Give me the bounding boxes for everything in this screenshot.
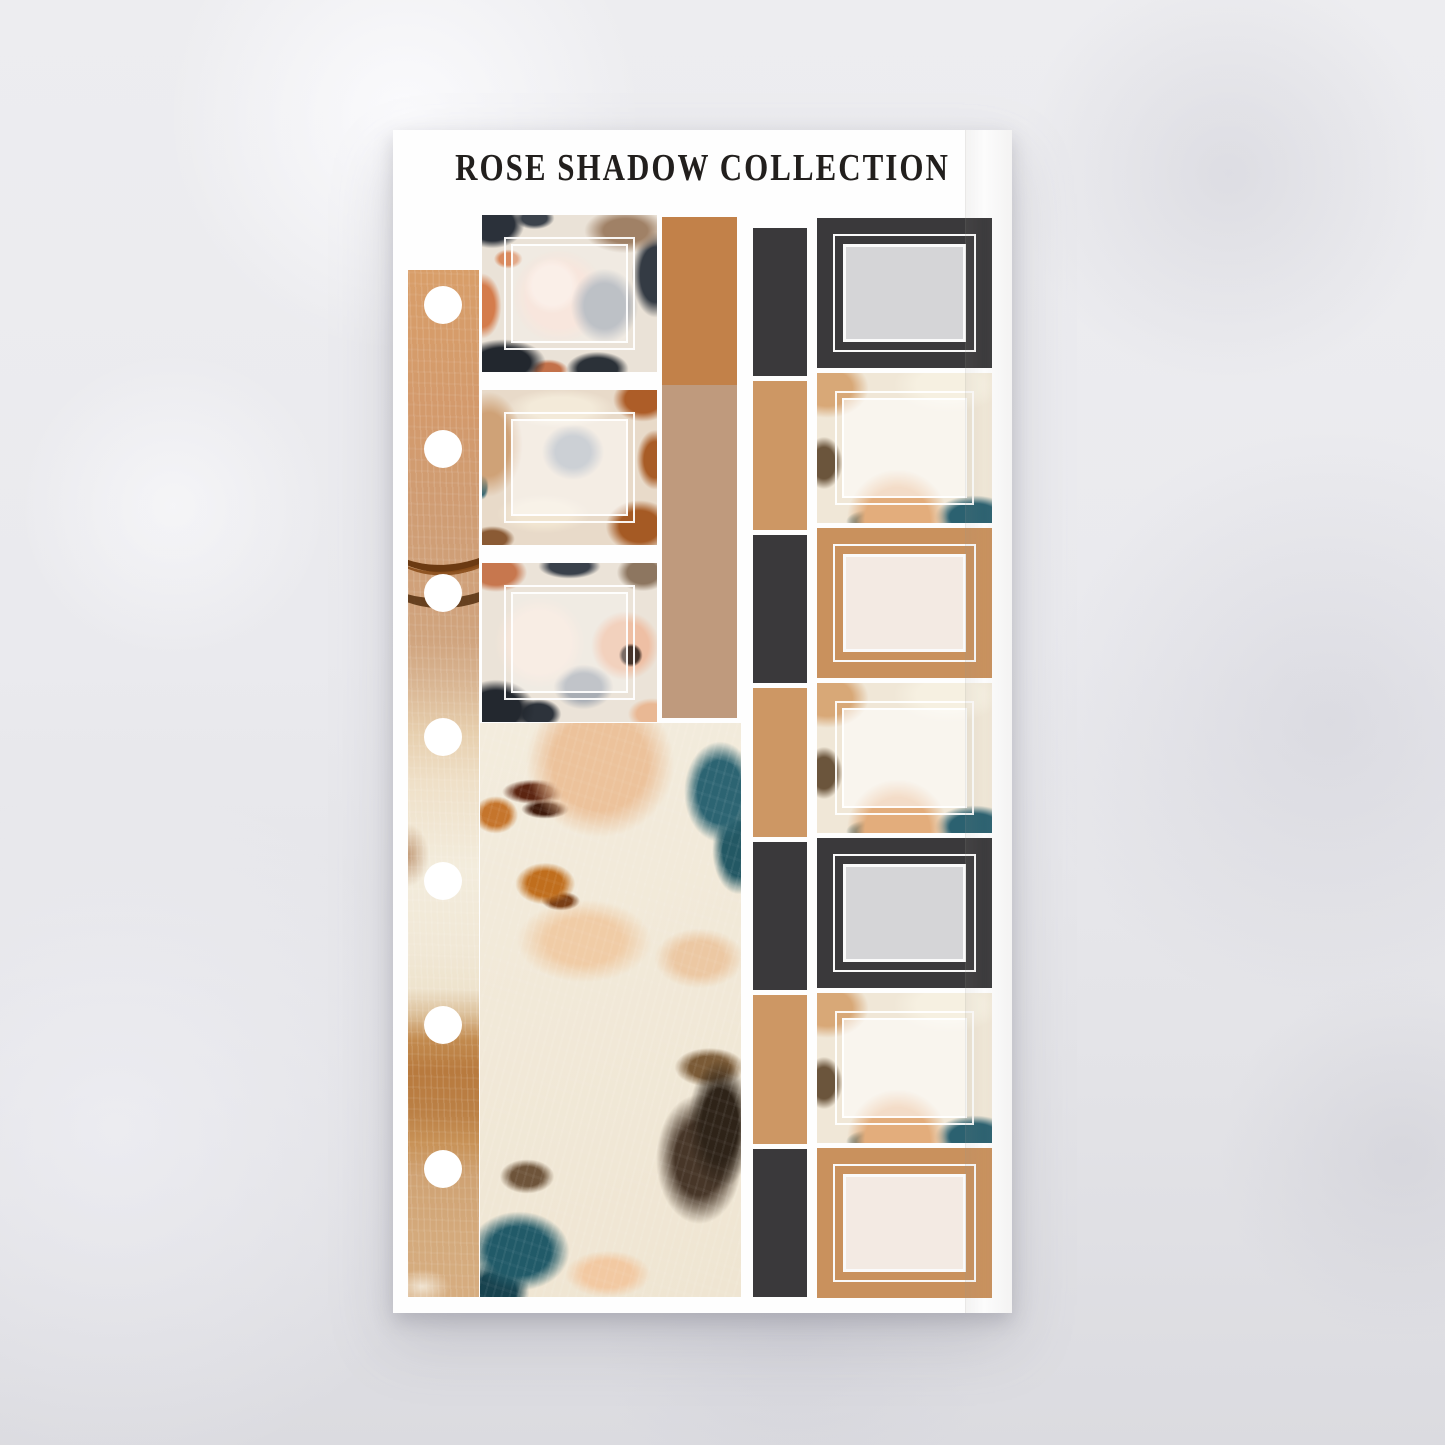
center-swatch: [843, 864, 966, 962]
charcoal-strip-sticker: [753, 842, 807, 990]
white-frame-inner: [842, 398, 967, 498]
charcoal-strip-sticker: [753, 535, 807, 683]
white-frame-inner: [511, 592, 628, 693]
white-frame-outer: [504, 412, 635, 523]
brush-texture: [408, 270, 479, 1297]
white-frame-outer: [504, 237, 635, 350]
brushstroke-box-sticker: [482, 390, 657, 545]
punch-hole: [424, 1150, 462, 1188]
abstract-paint-block-sticker: [480, 723, 741, 1297]
tan-strip-sticker: [753, 995, 807, 1143]
white-frame-outer: [504, 585, 635, 700]
floral-box-sticker: [482, 215, 657, 372]
tan-frame-sticker: [817, 528, 992, 678]
sticker-sheet: ROSE SHADOW COLLECTION: [393, 130, 1012, 1313]
punch-hole: [424, 718, 462, 756]
punch-hole: [424, 574, 462, 612]
charcoal-strip-sticker: [753, 228, 807, 376]
tan-strip-sticker: [753, 381, 807, 529]
white-frame-outer: [835, 391, 974, 505]
right-column: [817, 218, 992, 1298]
frosted-floral-box-sticker: [817, 683, 992, 833]
center-swatch: [843, 554, 966, 652]
white-frame-inner: [511, 244, 628, 343]
white-frame-outer: [835, 1011, 974, 1125]
tan-frame-sticker: [817, 1148, 992, 1298]
frosted-floral-box-sticker: [817, 993, 992, 1143]
charcoal-frame-sticker: [817, 218, 992, 368]
punch-hole: [424, 286, 462, 324]
spacer-column: [753, 228, 807, 1297]
punch-hole: [424, 430, 462, 468]
center-swatch: [843, 1174, 966, 1272]
marble-background: ROSE SHADOW COLLECTION: [0, 0, 1445, 1445]
punch-hole: [424, 862, 462, 900]
floral-box-sticker: [482, 563, 657, 722]
white-frame-inner: [511, 419, 628, 516]
punch-hole: [424, 1006, 462, 1044]
washi-strip-sticker: [408, 270, 479, 1297]
brush-texture: [480, 723, 741, 1297]
frosted-floral-box-sticker: [817, 373, 992, 523]
white-frame-outer: [835, 701, 974, 815]
charcoal-strip-sticker: [753, 1149, 807, 1297]
tan-strip-sticker: [753, 688, 807, 836]
white-frame-inner: [842, 708, 967, 808]
charcoal-frame-sticker: [817, 838, 992, 988]
center-swatch: [843, 244, 966, 342]
white-frame-inner: [842, 1018, 967, 1118]
tan-color-block-sticker: [662, 217, 737, 385]
muted-tan-color-block-sticker: [662, 385, 737, 718]
sheet-title: ROSE SHADOW COLLECTION: [393, 146, 1012, 190]
